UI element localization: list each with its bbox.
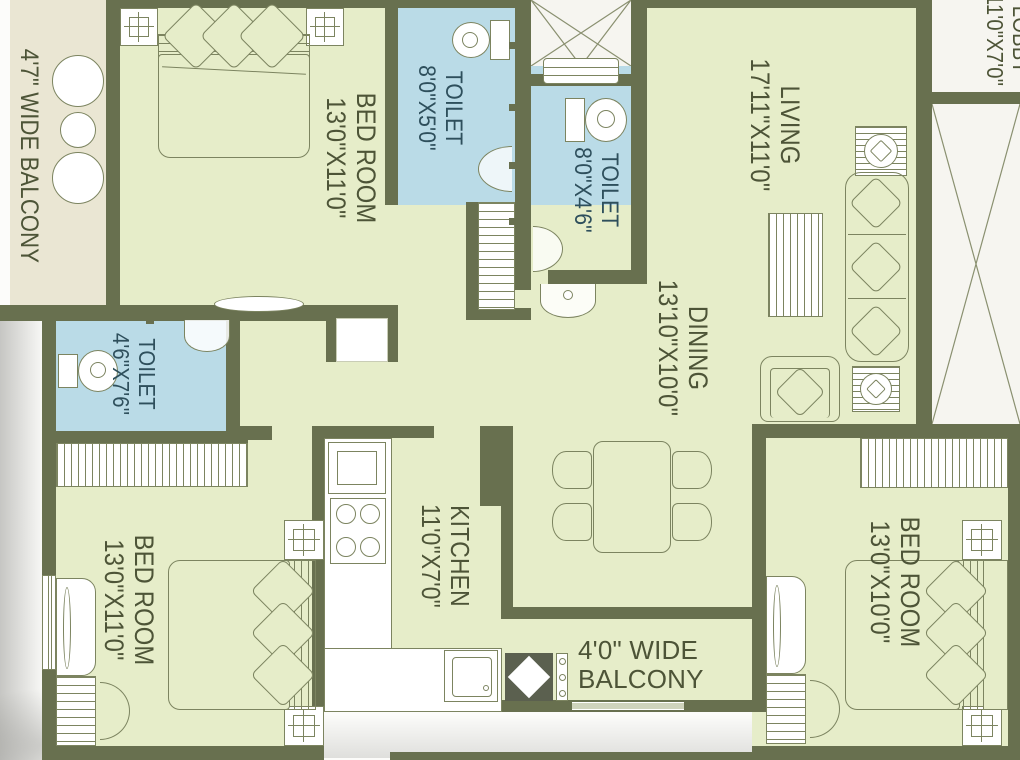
room-name: BED ROOM: [351, 83, 381, 233]
label-kitchen: KITCHEN 11'0"X7'0": [418, 486, 474, 627]
wardrobe-icon: [56, 676, 96, 746]
wall-lobby-bottom: [932, 92, 1020, 104]
room-dims: 11'0"X7'0": [416, 486, 445, 627]
duct-x-icon: [531, 0, 631, 66]
room-dims: 4'6"X7'6": [108, 314, 134, 434]
room-dims: 17'11"X11'0": [745, 48, 775, 203]
window-balcony-bottom: [572, 702, 684, 710]
counter-box: [328, 442, 386, 494]
label-bedroom-bottom-left: BED ROOM 13'0"X11'0": [101, 525, 159, 675]
mattress-edge: [983, 560, 1008, 710]
label-toilet-top: TOILET 8'0"X5'0": [414, 46, 466, 169]
room-name: TOILET: [133, 314, 159, 434]
wall-toilet-mid-right: [631, 0, 647, 284]
tap-icon: [509, 42, 523, 49]
table-top: [593, 441, 671, 553]
label-living: LIVING 17'11"X11'0": [747, 48, 805, 203]
floor-plan: 4'7" WIDE BALCONY BED ROOM 13'0"X11'0" T…: [0, 0, 1020, 760]
dining-table-icon: [552, 441, 712, 553]
wall-kitchen-dining-chunk: [480, 426, 513, 506]
room-name: BED ROOM: [895, 512, 925, 653]
stove-icon: [330, 498, 386, 564]
ceiling-fan-icon: [284, 520, 324, 560]
room-name: KITCHEN: [445, 486, 474, 627]
wall-foyer-bedroom-bl: [240, 426, 272, 440]
wall-bottom-center-band: [390, 752, 752, 760]
washing-area-icon: [505, 653, 553, 701]
chair-icon: [672, 451, 712, 489]
room-name: TOILET: [595, 128, 622, 251]
room-name: LIVING: [775, 48, 805, 203]
ceiling-fan-icon: [284, 706, 324, 746]
bed-icon: [158, 8, 310, 158]
ceiling-fan-icon: [120, 8, 158, 46]
wall-stairs-left: [466, 202, 478, 320]
label-toilet-left: TOILET 4'6"X7'6": [109, 314, 159, 434]
stool-icon: [60, 112, 96, 148]
chair-icon: [672, 503, 712, 541]
label-lobby: LOBBY 11'0"X7'0": [983, 0, 1020, 93]
label-toilet-mid: TOILET 8'0"X4'6": [570, 128, 622, 251]
round-table-icon: [52, 55, 104, 107]
ceiling-fan-icon: [962, 706, 1002, 746]
label-bedroom-bottom-right: BED ROOM 13'0"X10'0": [867, 512, 925, 653]
bed-icon: [168, 560, 316, 710]
wall-bottom-bl: [42, 746, 324, 760]
chair-icon: [552, 451, 592, 489]
round-table-icon: [52, 152, 104, 204]
wall-kitchen-right: [501, 506, 513, 619]
window-left: [42, 575, 56, 670]
room-dims: 13'10"X10'0": [653, 266, 683, 430]
wardrobe-icon: [56, 578, 96, 676]
wardrobe-icon: [766, 674, 806, 744]
wall-lobby-stairs-left: [916, 0, 932, 424]
wall-bedroomtl-toilet: [385, 0, 398, 205]
label-bedroom-top-left: BED ROOM 13'0"X11'0": [323, 83, 381, 233]
wall-toilet-mid-bottom: [548, 270, 647, 284]
wardrobe-icon: [56, 443, 248, 487]
side-table-icon: [852, 366, 900, 412]
entrance-opening: [336, 318, 388, 362]
staircase-void: [932, 104, 1020, 424]
wardrobe-icon: [860, 438, 1008, 488]
room-dims: 8'0"X5'0": [412, 46, 439, 169]
tap-icon: [509, 162, 523, 169]
ceiling-fan-icon: [306, 8, 344, 46]
armchair-icon: [760, 356, 840, 422]
wardrobe-icon: [766, 576, 806, 674]
shelf-icon: [214, 296, 304, 312]
room-name: DINING: [683, 266, 713, 430]
room-dims: 8'0"X4'6": [568, 128, 595, 251]
kitchen-sink-icon: [444, 650, 498, 702]
wall-bedroom-br-top: [752, 424, 1020, 438]
wall-dining-balcony: [513, 607, 755, 619]
rug-icon: [768, 213, 823, 317]
room-dims: 13'0"X11'0": [321, 83, 351, 233]
room-name-line1: 4'0" WIDE: [578, 636, 748, 665]
tap-icon: [509, 104, 523, 111]
duct-shaft: [531, 0, 631, 66]
wall-dining-bedroom-br: [752, 426, 766, 712]
shaft-ledge: [543, 58, 619, 84]
door-jamb-left: [326, 318, 336, 362]
ceiling-fan-icon: [962, 520, 1002, 560]
room-name: LOBBY: [1007, 0, 1020, 93]
tap-icon: [509, 218, 523, 225]
balcony-door-track: [556, 653, 568, 701]
door-jamb-right: [388, 318, 398, 362]
room-name-line2: BALCONY: [578, 665, 748, 694]
washbasin-icon: [540, 284, 596, 318]
chair-icon: [552, 503, 592, 541]
label-balcony-left: 4'7" WIDE BALCONY: [17, 49, 43, 251]
wall-right-exterior: [1008, 424, 1020, 760]
label-dining: DINING 13'10"X10'0": [655, 266, 713, 430]
wall-balcony-left-right: [106, 0, 120, 318]
room-dims: 13'0"X11'0": [99, 525, 129, 675]
wall-left-exterior-lower: [42, 670, 56, 758]
wall-kitchen-top: [324, 426, 434, 438]
fan-unit-icon: [855, 126, 907, 176]
room-dims: 11'0"X7'0": [982, 0, 1008, 93]
sofa-icon: [845, 172, 909, 362]
staircase-x-icon: [932, 104, 1020, 424]
wall-bottom-br: [752, 746, 1020, 760]
label-balcony-bottom: 4'0" WIDE BALCONY: [578, 636, 748, 696]
room-name: BED ROOM: [129, 525, 159, 675]
room-dims: 13'0"X10'0": [865, 512, 895, 653]
wall-top-living: [647, 0, 916, 8]
room-name: TOILET: [439, 46, 466, 169]
room-label: 4'7" WIDE BALCONY: [15, 49, 43, 263]
washbasin-icon: [184, 320, 230, 352]
wall-top-left: [108, 0, 531, 8]
